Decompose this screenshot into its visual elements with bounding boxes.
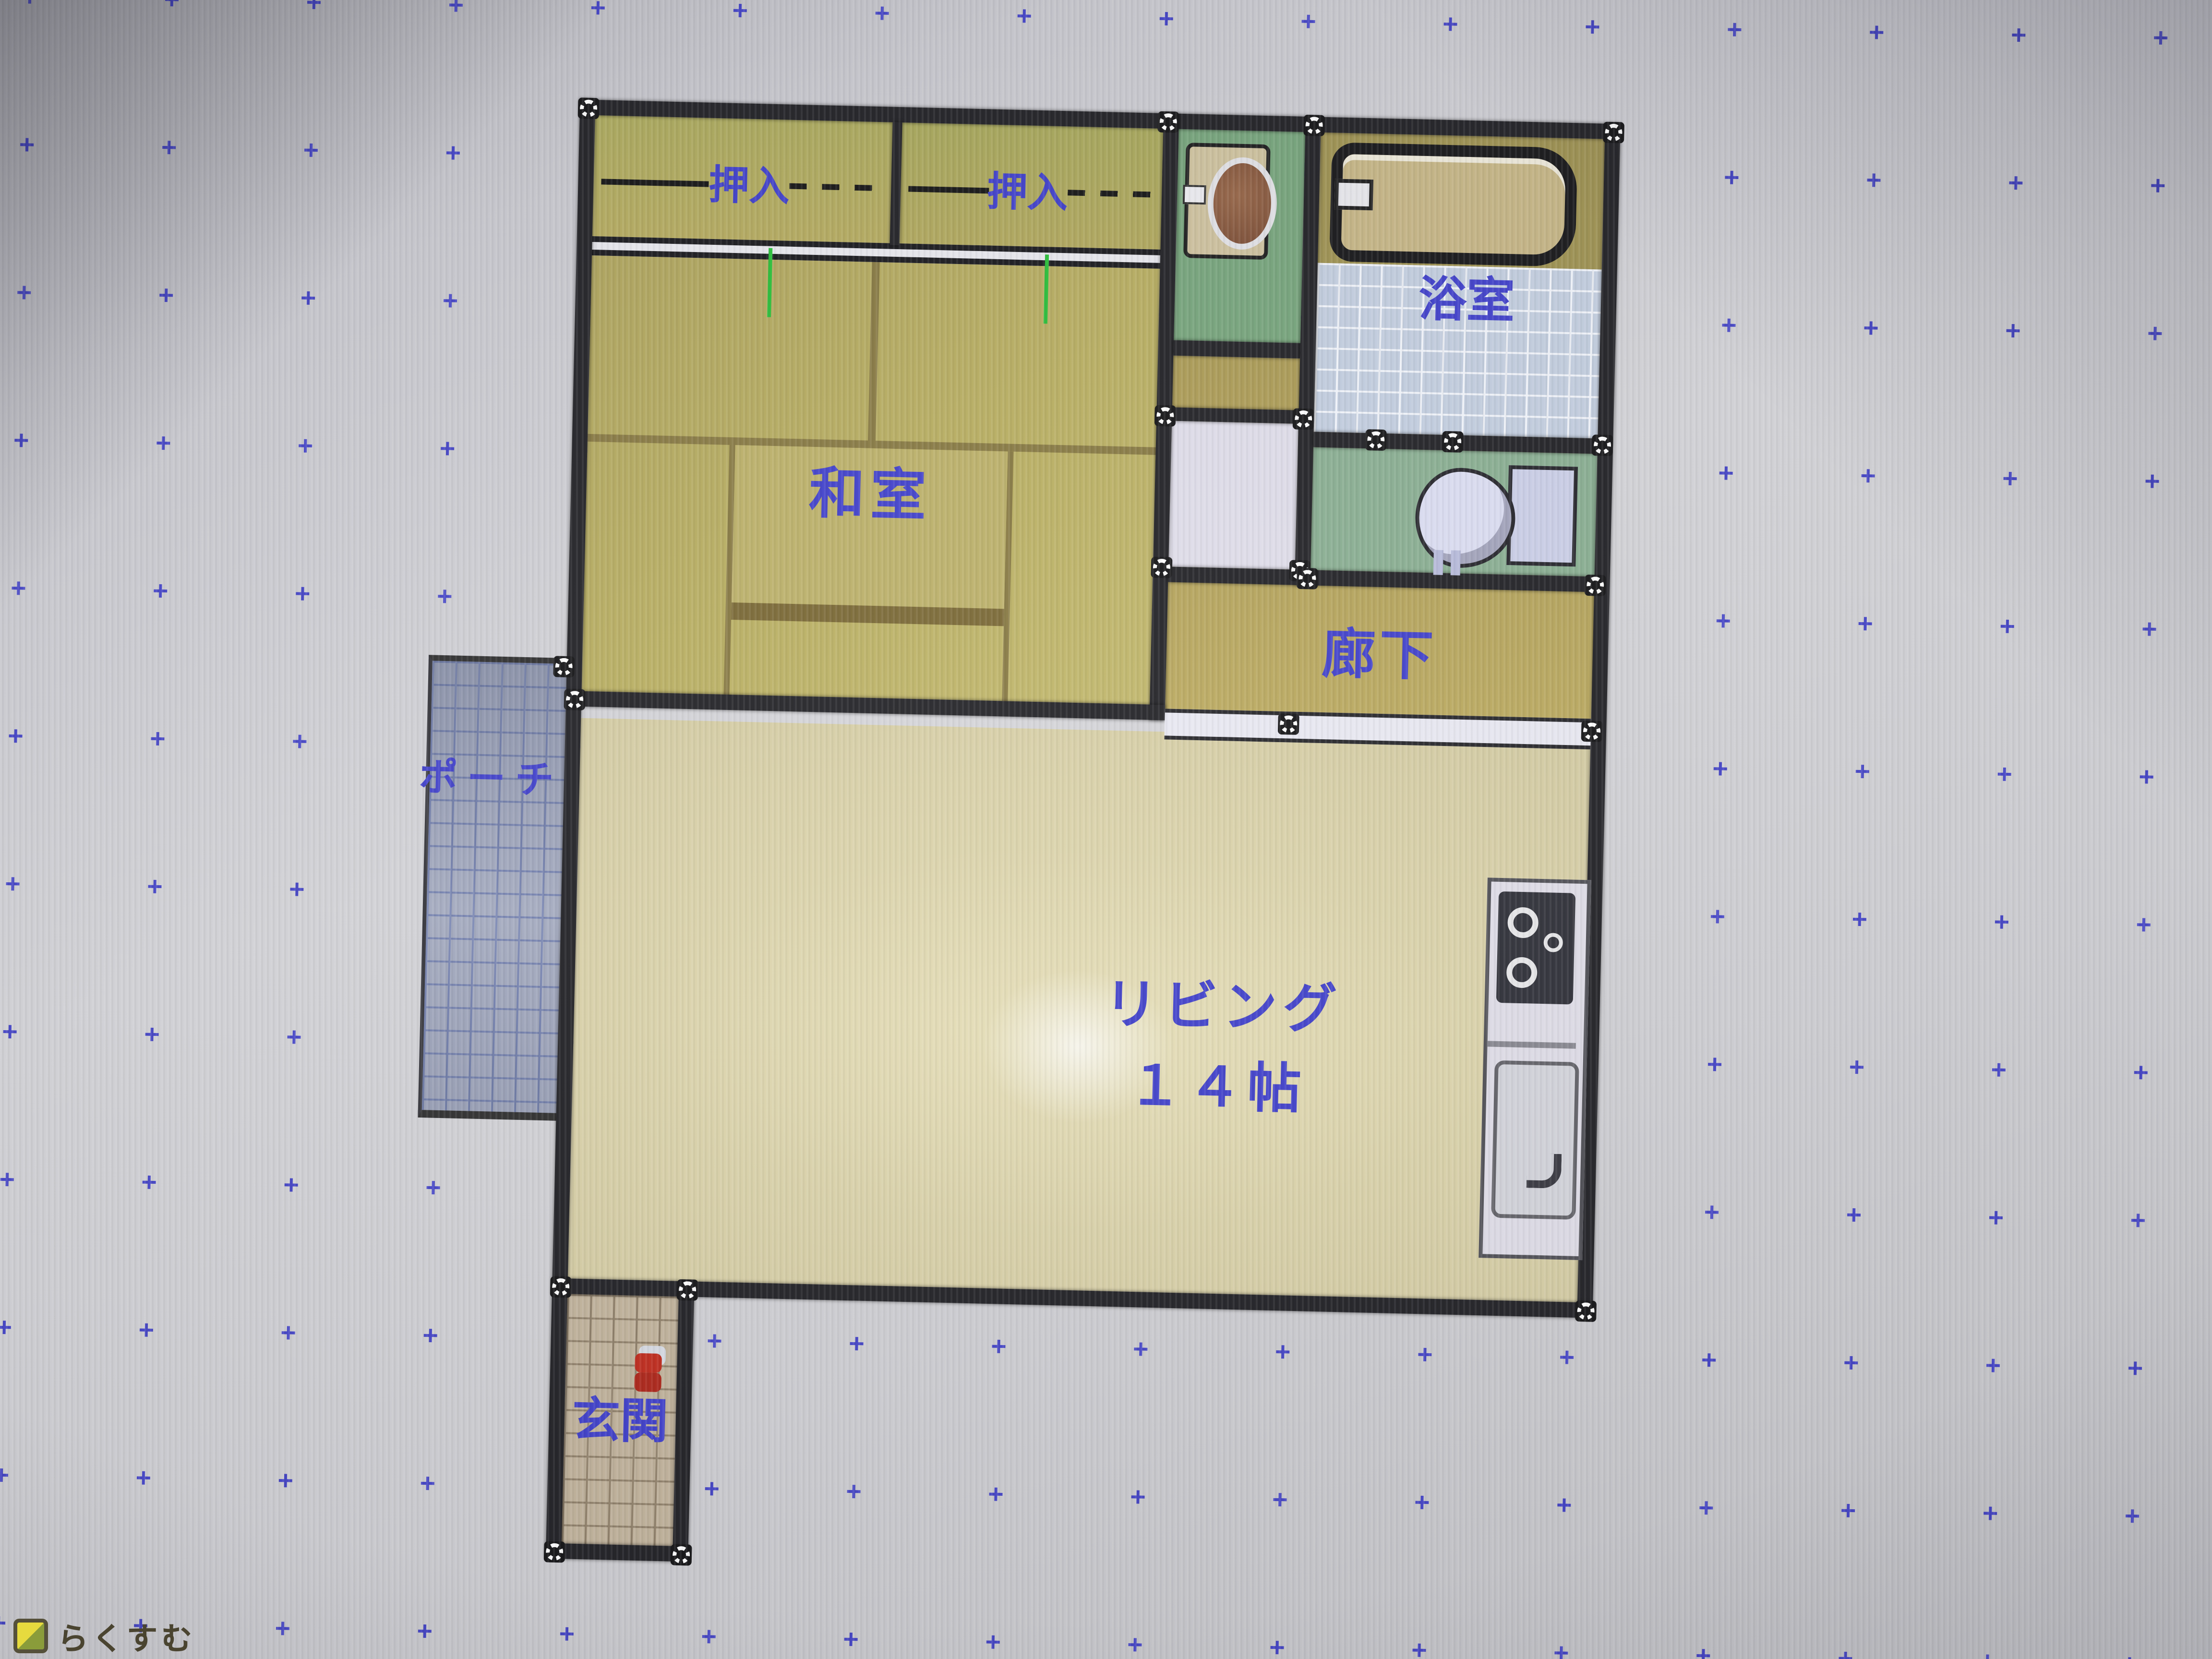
room-label-closet-right: 押入 [986, 161, 1069, 220]
wall-genkan-bottom[interactable] [546, 1543, 688, 1562]
toilet-door-mark [1451, 550, 1461, 575]
selection-handle[interactable] [544, 1541, 565, 1563]
selection-handle[interactable] [1157, 111, 1179, 133]
selection-handle[interactable] [564, 689, 586, 710]
porch-shading [422, 661, 567, 1113]
wall-washbasin-bottom[interactable] [1173, 340, 1300, 359]
watermark: らくすむ [13, 1613, 196, 1659]
bath-faucet-icon [1334, 179, 1373, 210]
room-label-closet-left: 押入 [708, 155, 790, 214]
burner-icon [1543, 933, 1563, 952]
selection-handle[interactable] [1603, 122, 1624, 144]
flower-icon [635, 1353, 662, 1373]
room-label-porch: ポーチ [419, 746, 564, 805]
selection-handle[interactable] [1151, 557, 1172, 578]
watermark-logo-icon [13, 1619, 48, 1653]
selection-handle[interactable] [671, 1544, 692, 1566]
selection-handle[interactable] [1154, 405, 1176, 427]
selection-handle[interactable] [578, 97, 600, 119]
room-label-bathroom: 浴室 [1418, 262, 1515, 333]
selection-handle[interactable] [1575, 1300, 1597, 1322]
selection-handle[interactable] [1442, 431, 1464, 453]
toilet-door-mark [1433, 550, 1443, 575]
room-label-hallway: 廊下 [1321, 613, 1438, 692]
room-label-living-size: １４帖 [1128, 1044, 1308, 1125]
selection-handle[interactable] [1303, 115, 1325, 136]
watermark-text: らくすむ [58, 1613, 196, 1659]
room-washroom-entry[interactable] [1168, 421, 1298, 570]
monitor-photo: ++++++++++++++++++++++++++++++++++++++++… [0, 0, 2212, 1659]
toilet-tank-icon[interactable] [1506, 465, 1578, 566]
burner-icon [1506, 957, 1537, 988]
sink-faucet-icon [1527, 1153, 1562, 1189]
room-label-genkan: 玄関 [571, 1382, 669, 1454]
room-label-washitsu: 和室 [808, 449, 933, 532]
stove-icon[interactable] [1496, 891, 1575, 1005]
selection-handle[interactable] [1278, 713, 1299, 735]
room-porch[interactable] [418, 655, 567, 1121]
selection-handle[interactable] [1581, 721, 1603, 742]
selection-handle[interactable] [1293, 408, 1314, 430]
sink-icon[interactable] [1491, 1060, 1579, 1220]
washbasin-faucet-icon [1183, 185, 1206, 204]
room-label-living: リビング [1104, 963, 1344, 1046]
selection-handle[interactable] [677, 1279, 698, 1301]
selection-handle[interactable] [1585, 575, 1606, 596]
selection-handle[interactable] [550, 1276, 572, 1298]
selection-handle[interactable] [1592, 434, 1613, 456]
selection-handle[interactable] [553, 656, 575, 677]
burner-icon [1507, 907, 1539, 938]
selection-handle[interactable] [1365, 429, 1387, 451]
floor-plan: 押入 押入 和室 浴室 廊下 リビング １４帖 ポーチ 玄関 [0, 0, 2212, 1659]
selection-handle[interactable] [1297, 568, 1318, 589]
